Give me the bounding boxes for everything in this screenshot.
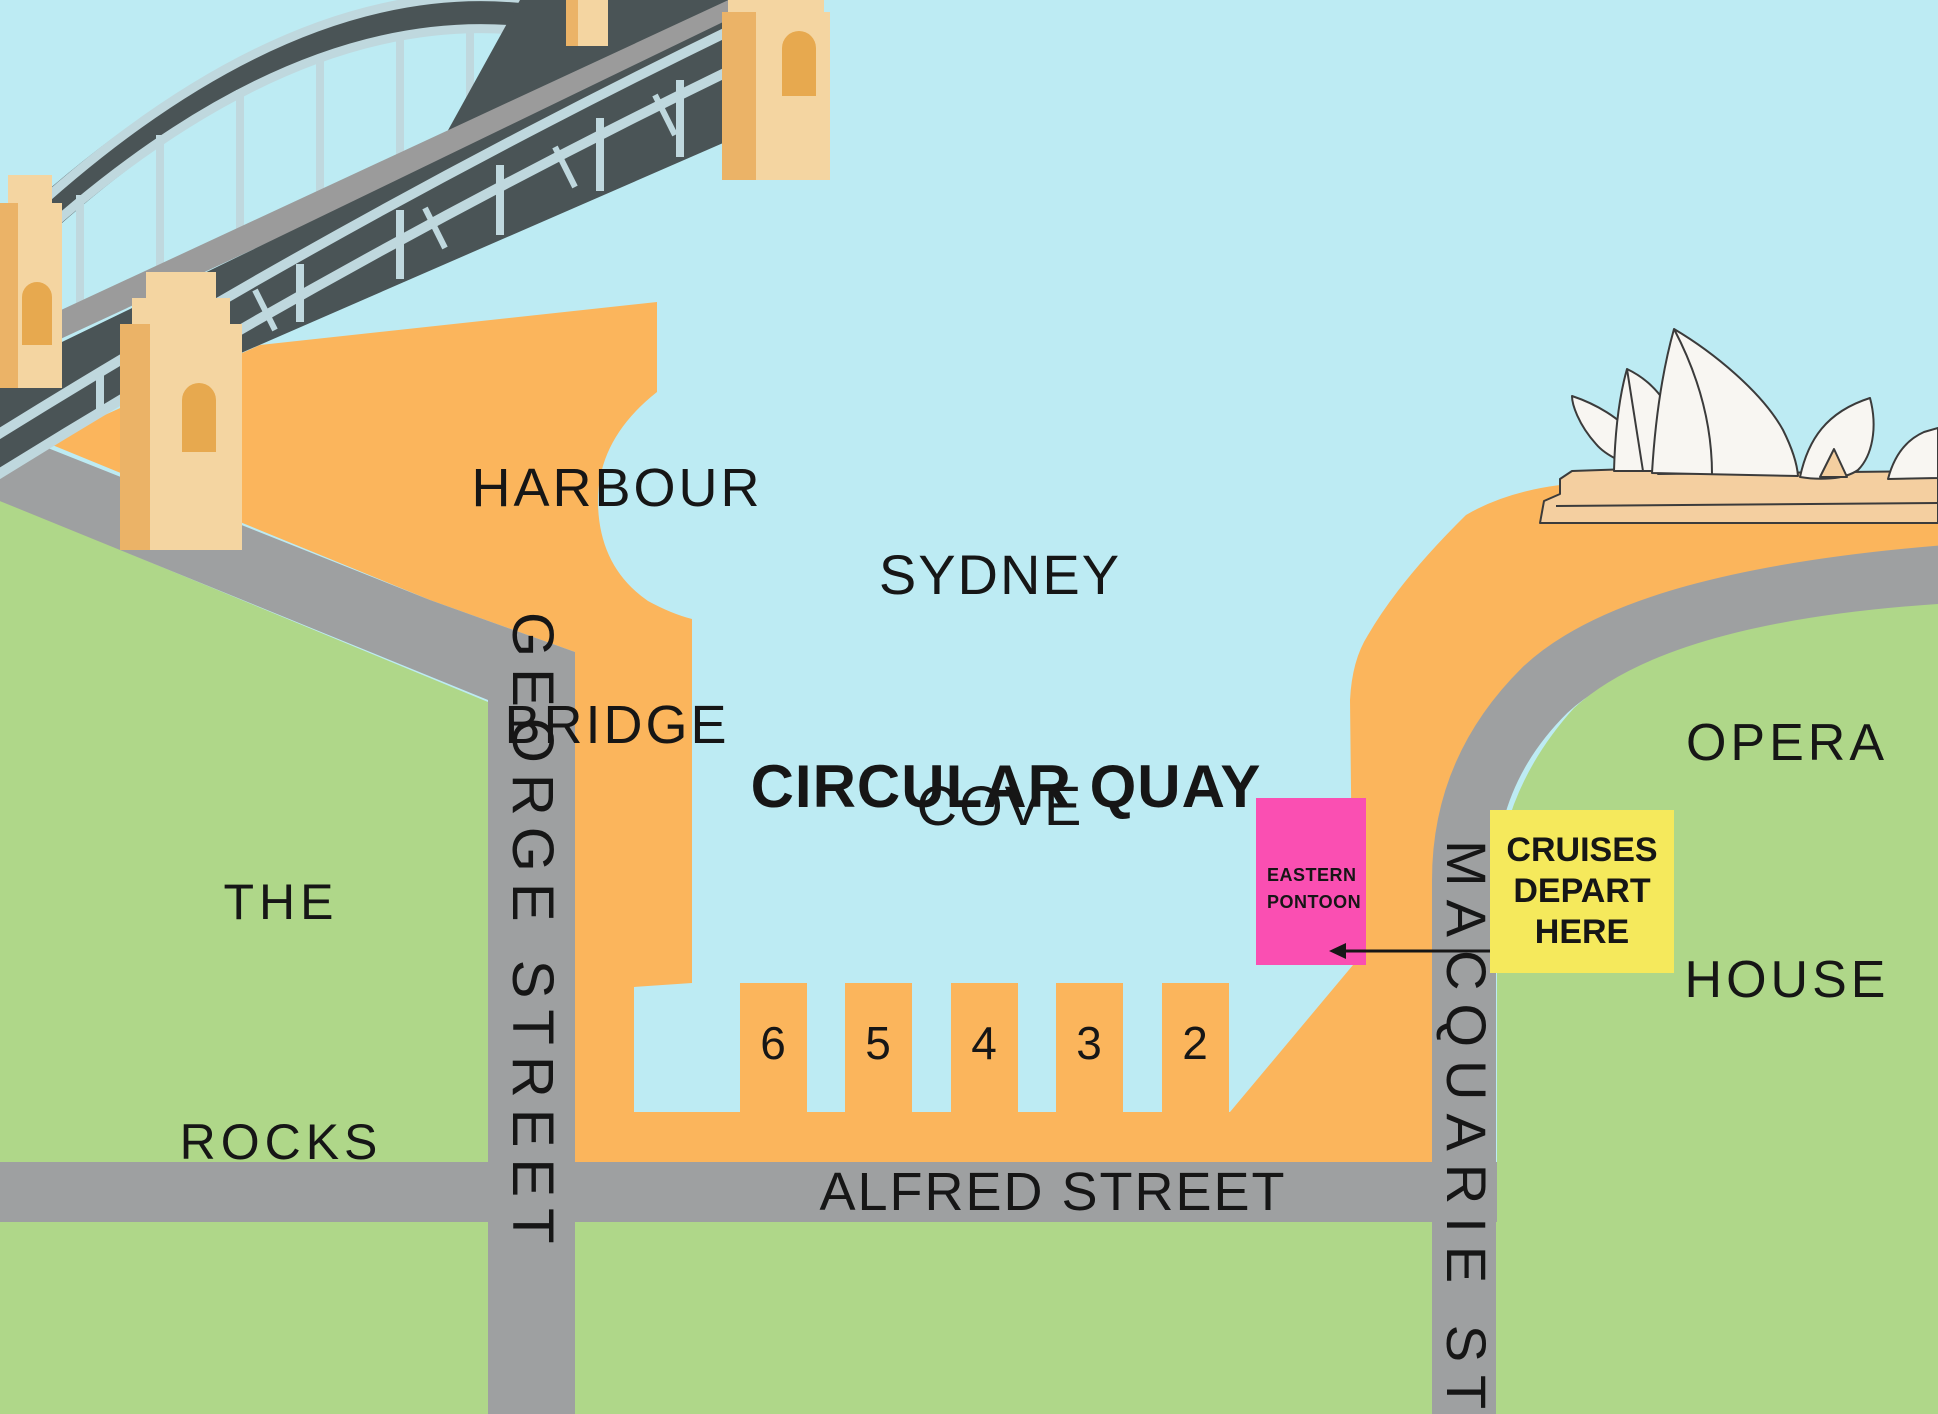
label-the-rocks: THE ROCKS (31, 702, 531, 1342)
label-circular-quay: CIRCULAR QUAY (706, 752, 1306, 821)
wharf-5-number: 5 (848, 1016, 908, 1070)
bridge-pylon-right (722, 0, 830, 180)
label-line: ROCKS (31, 1102, 531, 1182)
pontoon-label-line: EASTERN (1267, 862, 1366, 889)
wharf-4-number: 4 (954, 1016, 1014, 1070)
wharf-2-number: 2 (1165, 1016, 1225, 1070)
map-stage: HARBOUR BRIDGE SYDNEY COVE THE ROCKS OPE… (0, 0, 1938, 1414)
opera-house-icon (1540, 329, 1938, 523)
label-macquarie-street: MACQUARIE STREET (1429, 840, 1499, 1414)
wharf-3-number: 3 (1059, 1016, 1119, 1070)
bridge-pylon-far-left (0, 175, 62, 388)
label-sydney-cove: SYDNEY COVE (750, 382, 1250, 998)
wharf-6-number: 6 (743, 1016, 803, 1070)
callout-line: CRUISES (1506, 830, 1657, 871)
bridge-pylon-left (120, 272, 242, 550)
pontoon-label-line: PONTOON (1267, 889, 1366, 916)
callout-line: DEPART (1513, 871, 1650, 912)
label-line: OPERA (1537, 704, 1938, 783)
cruises-depart-callout: CRUISES DEPART HERE (1490, 810, 1674, 973)
label-line: SYDNEY (750, 536, 1250, 613)
label-alfred-street: ALFRED STREET (753, 1162, 1353, 1222)
callout-line: HERE (1535, 912, 1629, 953)
label-george-street: GEORGE STREET (496, 612, 566, 1372)
label-line: THE (31, 862, 531, 942)
departure-arrow-icon (1320, 935, 1500, 967)
